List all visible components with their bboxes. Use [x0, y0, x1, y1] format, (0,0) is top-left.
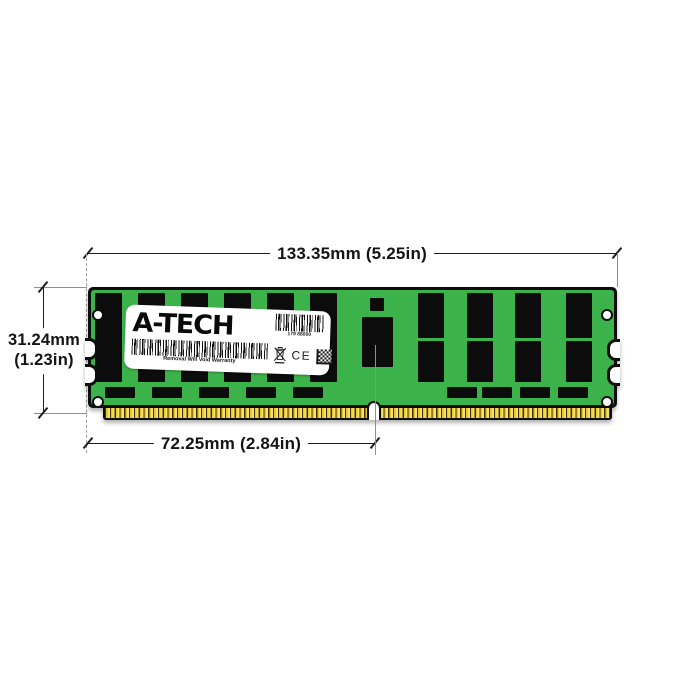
height-dimension-label: 31.24mm (1.23in): [5, 328, 83, 374]
serial-barcode: [275, 314, 324, 333]
right-edge-notch-lower: [607, 364, 620, 386]
dram-chip: [418, 341, 444, 382]
ce-mark-text: CE: [291, 348, 311, 363]
dram-chip: [199, 387, 229, 398]
dram-chip: [370, 298, 384, 311]
dram-chip: [152, 387, 182, 398]
atech-logo: A-TECH: [132, 308, 234, 340]
warranty-barcode-block: Removal Will Void Warranty: [131, 339, 268, 367]
qr-code-icon: [316, 349, 332, 365]
key-notch-extension-line: [375, 345, 376, 455]
width-dimension-label: 133.35mm (5.25in): [270, 243, 434, 265]
product-label: A-TECH 179 88000 Removal Will Void Warra…: [124, 304, 331, 375]
serial-barcode-block: 179 88000: [275, 314, 324, 339]
dram-chip: [418, 293, 444, 338]
dram-chip: [520, 387, 550, 398]
right-edge-notch-upper: [607, 339, 620, 361]
dram-chip: [95, 293, 122, 382]
product-dimension-diagram: 133.35mm (5.25in) 31.24mm (1.23in) 72.25…: [0, 0, 700, 700]
certification-marks: CE: [273, 346, 331, 366]
weee-crossed-bin-icon: [273, 346, 287, 364]
dram-chip: [467, 293, 493, 338]
gold-pins: [105, 408, 610, 418]
height-label-mm: 31.24mm: [8, 331, 80, 351]
dram-chip: [515, 341, 541, 382]
height-label-in: (1.23in): [8, 351, 80, 371]
mounting-hole-top-left: [92, 309, 104, 321]
dram-chip: [447, 387, 477, 398]
dram-chip: [482, 387, 512, 398]
right-extension-line: [617, 253, 618, 287]
dram-chip: [515, 293, 541, 338]
mounting-hole-top-right: [601, 309, 613, 321]
dram-chip: [467, 341, 493, 382]
dram-chip: [566, 341, 592, 382]
dram-chip: [105, 387, 135, 398]
dram-chip: [246, 387, 276, 398]
dram-chip: [362, 317, 393, 367]
dram-chip: [566, 293, 592, 338]
memory-module: A-TECH 179 88000 Removal Will Void Warra…: [88, 287, 617, 420]
mounting-hole-bottom-left: [92, 396, 104, 408]
serial-number-text: 179 88000: [275, 331, 323, 339]
mounting-hole-bottom-right: [601, 396, 613, 408]
dram-chip: [293, 387, 323, 398]
pin-span-dimension-label: 72.25mm (2.84in): [154, 433, 308, 455]
dram-chip: [558, 387, 588, 398]
gold-edge-connector: [103, 406, 612, 420]
